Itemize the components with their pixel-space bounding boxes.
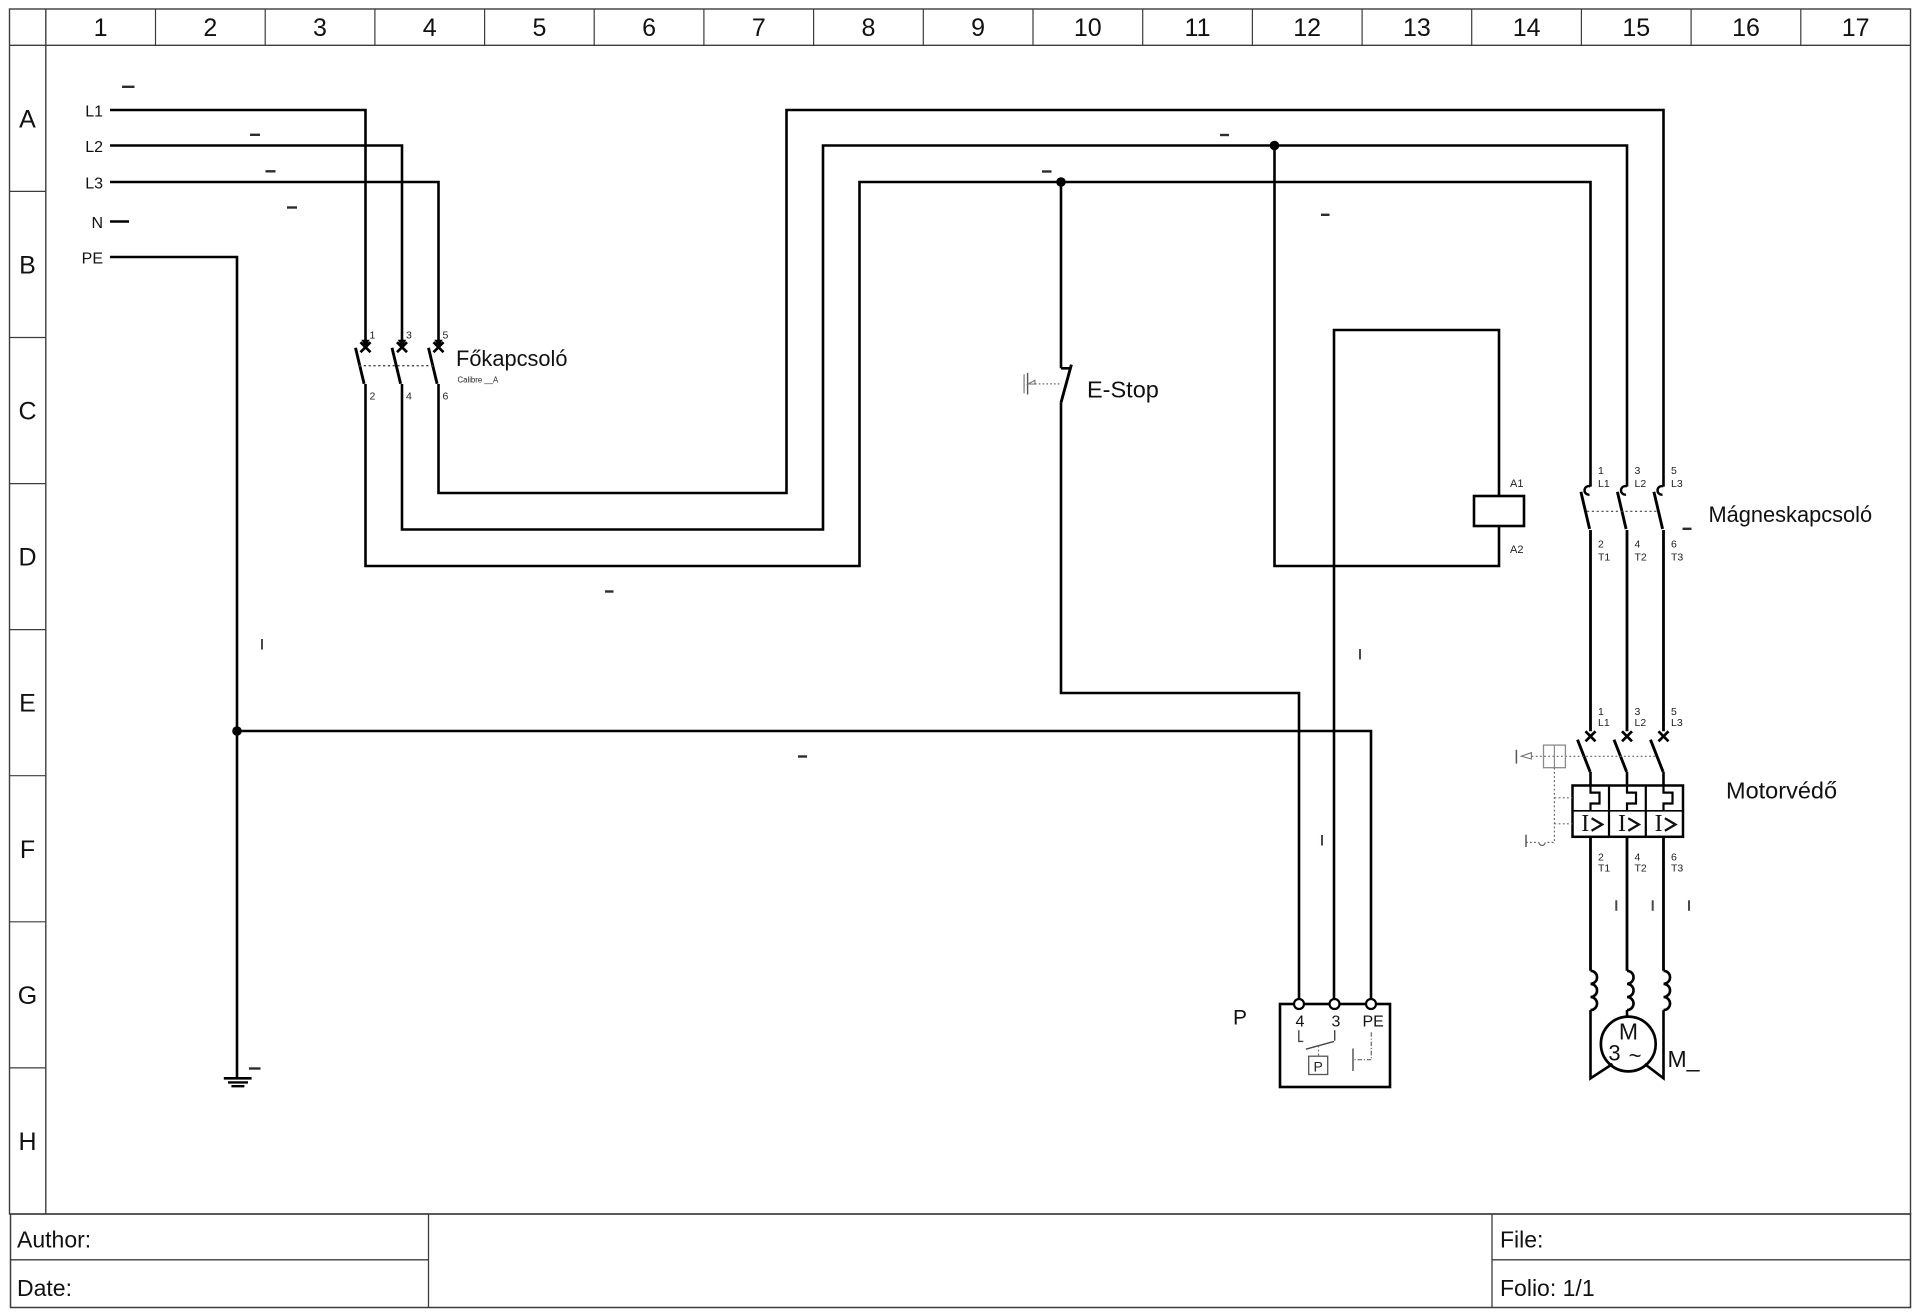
svg-text:1: 1 bbox=[370, 330, 376, 342]
svg-text:~: ~ bbox=[1629, 1043, 1642, 1068]
svg-text:Motorvédő: Motorvédő bbox=[1726, 778, 1837, 804]
svg-text:1: 1 bbox=[94, 14, 108, 42]
svg-text:6: 6 bbox=[1671, 539, 1677, 551]
svg-text:D: D bbox=[18, 544, 36, 572]
svg-text:4: 4 bbox=[1635, 539, 1641, 551]
svg-text:Főkapcsoló: Főkapcsoló bbox=[456, 346, 567, 371]
svg-text:F: F bbox=[20, 836, 35, 864]
svg-text:5: 5 bbox=[532, 14, 546, 42]
svg-text:7: 7 bbox=[752, 14, 766, 42]
svg-text:Author:: Author: bbox=[17, 1227, 91, 1253]
svg-text:3: 3 bbox=[313, 14, 327, 42]
svg-text:T3: T3 bbox=[1671, 552, 1683, 564]
svg-text:Calibre __A: Calibre __A bbox=[458, 376, 500, 385]
svg-text:T2: T2 bbox=[1635, 863, 1647, 875]
svg-text:I: I bbox=[1618, 811, 1626, 837]
svg-text:T3: T3 bbox=[1671, 863, 1683, 875]
svg-text:15: 15 bbox=[1622, 14, 1650, 42]
svg-text:4: 4 bbox=[423, 14, 437, 42]
svg-text:13: 13 bbox=[1403, 14, 1431, 42]
svg-text:C: C bbox=[18, 398, 36, 426]
svg-text:Folio: 1/1: Folio: 1/1 bbox=[1500, 1275, 1595, 1301]
svg-text:3: 3 bbox=[1635, 465, 1641, 477]
svg-text:2: 2 bbox=[203, 14, 217, 42]
svg-text:E: E bbox=[19, 690, 36, 718]
svg-text:I: I bbox=[1655, 811, 1663, 837]
svg-text:File:: File: bbox=[1500, 1227, 1543, 1253]
svg-text:A2: A2 bbox=[1510, 544, 1523, 556]
svg-text:L2: L2 bbox=[1635, 478, 1647, 490]
svg-text:PE: PE bbox=[1363, 1014, 1384, 1031]
svg-text:L2: L2 bbox=[85, 139, 103, 156]
svg-text:M: M bbox=[1619, 1019, 1638, 1045]
svg-text:5: 5 bbox=[443, 330, 449, 342]
svg-text:M_: M_ bbox=[1668, 1046, 1701, 1072]
svg-text:14: 14 bbox=[1513, 14, 1541, 42]
svg-text:A: A bbox=[19, 105, 36, 133]
svg-text:16: 16 bbox=[1732, 14, 1760, 42]
svg-text:L3: L3 bbox=[1671, 478, 1683, 490]
svg-text:17: 17 bbox=[1842, 14, 1870, 42]
svg-text:P: P bbox=[1233, 1007, 1247, 1030]
svg-text:Mágneskapcsoló: Mágneskapcsoló bbox=[1709, 502, 1873, 527]
svg-text:T1: T1 bbox=[1598, 552, 1610, 564]
svg-text:PE: PE bbox=[82, 251, 103, 268]
svg-text:E-Stop: E-Stop bbox=[1087, 377, 1159, 403]
svg-text:T2: T2 bbox=[1635, 552, 1647, 564]
svg-text:5: 5 bbox=[1671, 465, 1677, 477]
svg-text:10: 10 bbox=[1074, 14, 1102, 42]
svg-text:L3: L3 bbox=[1671, 717, 1683, 729]
svg-text:G: G bbox=[18, 982, 37, 1010]
svg-text:A1: A1 bbox=[1510, 478, 1523, 490]
svg-text:11: 11 bbox=[1185, 14, 1211, 42]
svg-text:L1: L1 bbox=[85, 104, 103, 121]
svg-text:L3: L3 bbox=[85, 176, 103, 193]
svg-text:4: 4 bbox=[406, 391, 412, 403]
svg-text:2: 2 bbox=[1598, 539, 1604, 551]
svg-text:3: 3 bbox=[406, 330, 412, 342]
svg-text:Date:: Date: bbox=[17, 1275, 72, 1301]
svg-text:1: 1 bbox=[1598, 465, 1604, 477]
svg-text:4: 4 bbox=[1296, 1014, 1305, 1031]
svg-text:L1: L1 bbox=[1598, 717, 1610, 729]
svg-text:I: I bbox=[1581, 811, 1589, 837]
svg-text:P: P bbox=[1314, 1059, 1323, 1075]
svg-text:3: 3 bbox=[1608, 1041, 1620, 1066]
svg-text:B: B bbox=[19, 251, 36, 279]
svg-text:N: N bbox=[91, 215, 103, 232]
svg-text:6: 6 bbox=[642, 14, 656, 42]
svg-text:2: 2 bbox=[370, 391, 376, 403]
svg-text:6: 6 bbox=[443, 391, 449, 403]
svg-text:12: 12 bbox=[1293, 14, 1321, 42]
svg-text:3: 3 bbox=[1332, 1014, 1341, 1031]
svg-text:H: H bbox=[18, 1128, 36, 1156]
svg-text:9: 9 bbox=[971, 14, 985, 42]
svg-text:8: 8 bbox=[862, 14, 876, 42]
svg-text:T1: T1 bbox=[1598, 863, 1610, 875]
svg-text:L1: L1 bbox=[1598, 478, 1610, 490]
svg-text:L2: L2 bbox=[1635, 717, 1647, 729]
